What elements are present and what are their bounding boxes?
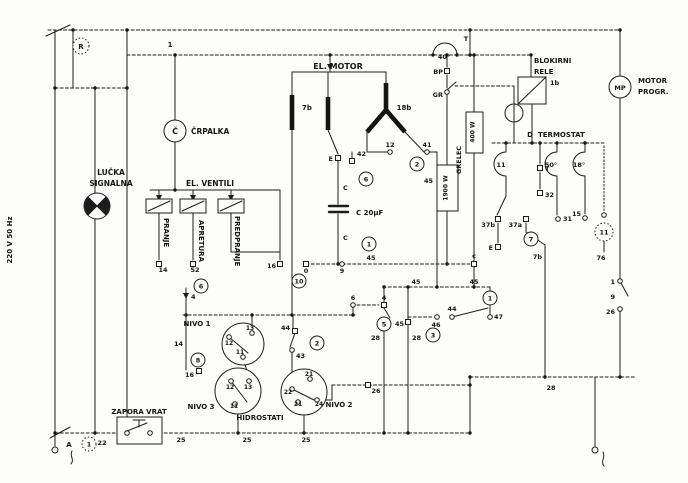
terminal-16-b: 16 (185, 371, 195, 379)
relay-label-2: RELE (534, 68, 554, 76)
program-motor-label-1: MOTOR (638, 77, 668, 85)
step-6-valves: 6 (199, 283, 204, 291)
nivo2-label: NIVO 2 (325, 401, 352, 409)
pump-label: ČRPALKA (191, 127, 229, 136)
door-lock-label: ZAPORA VRAT (111, 408, 167, 416)
thermostat-arc-left-label: 11 (496, 161, 506, 169)
terminal-25-c: 25 (242, 436, 252, 444)
terminal-15: 15 (572, 210, 582, 218)
terminal-4-valve: 4 (191, 293, 196, 301)
terminal-25-a: 25 (301, 436, 311, 444)
step-5: 5 (382, 321, 387, 329)
selector-switch-label: R (78, 43, 84, 51)
terminal-45-c: 45 (395, 320, 405, 328)
terminal-GR: GR (433, 91, 443, 99)
terminal-45-b: 45 (424, 177, 434, 185)
heater-1900w-label: 1900 W (443, 175, 450, 201)
hydrostats-label: HIDROSTATI (236, 414, 283, 422)
terminal-mp-1: 1 (610, 278, 615, 286)
valve-apretura-icon (180, 199, 206, 213)
motor-label: EL. MOTOR (313, 62, 363, 71)
terminal-14-b: 14 (174, 340, 184, 348)
step-2-motor: 2 (415, 161, 420, 169)
wiring-layer (46, 25, 636, 466)
terminal-25-b: 25 (176, 436, 186, 444)
terminal-14-valve: 14 (158, 266, 168, 274)
terminal-c: c (472, 252, 476, 260)
terminal-41-motor: 41 (422, 141, 432, 149)
step-1-right: 1 (488, 295, 493, 303)
nivo1-terminal-13: 13 (246, 325, 254, 332)
step-3: 3 (431, 332, 436, 340)
nivo3-terminal-12: 12 (226, 384, 234, 391)
pump-symbol-letter: Č (172, 125, 178, 136)
relay-label-1: BLOKIRNI (534, 57, 571, 65)
line-1-label: 1 (168, 41, 173, 49)
terminal-A: A (66, 441, 72, 449)
nivo3-terminal-11: 11 (230, 403, 238, 410)
arrow-level-feed (183, 293, 189, 299)
terminal-22: 22 (97, 439, 106, 447)
terminal-28-b: 28 (371, 334, 381, 342)
valve-pranje-icon (146, 199, 172, 213)
supply-note: 220 V 50 Hz (6, 216, 14, 263)
terminal-T-top: T (464, 35, 469, 43)
terminal-28-a: 28 (546, 384, 556, 392)
terminal-9: 9 (340, 267, 345, 275)
terminal-52-valve: 52 (190, 266, 199, 274)
terminal-E-thermo: E (489, 244, 493, 252)
terminal-47: 47 (494, 313, 503, 321)
nivo2-terminal-21-top: 21 (305, 371, 313, 378)
nivo1-label: NIVO 1 (183, 320, 210, 328)
capacitor-label: C 20µF (356, 209, 383, 217)
terminal-6-b: 6 (351, 294, 356, 302)
valve-apretura-label: APRETURA (197, 220, 205, 263)
component-layer (50, 28, 631, 453)
terminal-45-a: 45 (366, 254, 376, 262)
program-motor-label-2: PROGR. (638, 88, 668, 96)
thermostat-section-label: TERMOSTAT (538, 131, 585, 139)
nivo1-terminal-12: 12 (225, 340, 233, 347)
winding-18b-label: 18b (397, 104, 412, 112)
nivo3-label: NIVO 3 (187, 403, 214, 411)
terminal-37a: 37a (509, 221, 522, 229)
terminal-44-a: 44 (281, 324, 291, 332)
valve-predpranje-label: PREDPRANJE (233, 216, 241, 267)
terminal-mp-26: 26 (606, 308, 616, 316)
step-7: 7 (529, 236, 534, 244)
thermostat-40-label: 40° (438, 53, 450, 61)
valves-section-label: EL. VENTILI (186, 179, 234, 188)
signal-lamp-icon (84, 193, 110, 219)
terminal-4-b: 4 (382, 294, 387, 302)
terminal-12-motor: 12 (385, 141, 394, 149)
schematic-canvas: 220 V 50 Hz R 1 Č ČRPALKA LUČKA SIGNALNA… (0, 0, 688, 483)
terminal-7b: 7b (533, 253, 543, 261)
nivo2-terminal-24: 24 (315, 401, 323, 408)
schematic-page: 220 V 50 Hz R 1 Č ČRPALKA LUČKA SIGNALNA… (0, 0, 688, 483)
terminal-46: 46 (431, 321, 441, 329)
lamp-label-2: SIGNALNA (89, 179, 132, 188)
terminal-E-motor: E (329, 155, 333, 163)
terminal-32: 32 (545, 191, 554, 199)
relay-code-label: 1b (550, 79, 560, 87)
supply-terminal-right (592, 447, 598, 453)
mp-contact-26 (618, 307, 623, 312)
heater-400w-label: 400 W (470, 121, 477, 143)
terminal-42: 42 (357, 150, 366, 158)
terminal-45-d: 45 (411, 278, 421, 286)
terminal-28-c: 28 (412, 334, 422, 342)
heater-label: GRELEC (455, 146, 463, 174)
relay-lamp-icon (505, 104, 523, 122)
lamp-label-1: LUČKA (97, 168, 125, 177)
step-10: 10 (294, 278, 304, 286)
step-8: 8 (196, 357, 201, 365)
terminal-mp-9: 9 (610, 293, 615, 301)
nivo2-terminal-22: 22 (284, 389, 292, 396)
nivo2-terminal-21-bot: 21 (294, 401, 302, 408)
thermostat-18-label: 18° (573, 161, 585, 169)
nivo1-terminal-11: 11 (236, 349, 244, 356)
winding-7b-label: 7b (302, 104, 312, 112)
terminal-45-e: 45 (469, 278, 479, 286)
terminal-37b: 37b (481, 221, 495, 229)
terminal-BP: BP (433, 68, 443, 76)
terminal-76: 76 (596, 254, 606, 262)
program-motor-symbol: MP (614, 84, 625, 92)
step-1-cap: 1 (367, 241, 372, 249)
step-1-door: 1 (87, 441, 92, 449)
valve-predpranje-icon (218, 199, 244, 213)
terminal-16-valve: 16 (267, 262, 277, 270)
step-6-motor: 6 (364, 176, 369, 184)
terminal-T-thermo: T (545, 165, 550, 173)
step-2-level: 2 (315, 340, 320, 348)
cap-wire-c-top: C (343, 184, 348, 192)
terminal-26-b: 26 (371, 387, 381, 395)
nivo3-terminal-13: 13 (244, 384, 252, 391)
valve-pranje-label: PRANJE (162, 218, 170, 247)
mp-contact-1 (618, 279, 623, 284)
thermostat-prefix: D (527, 131, 533, 139)
terminal-44-b: 44 (447, 305, 457, 313)
terminal-43: 43 (296, 352, 305, 360)
step-11: 11 (599, 229, 609, 237)
cap-wire-c-bottom: C (343, 234, 348, 242)
blocking-relay-icon (518, 77, 546, 104)
door-lock-icon (117, 417, 162, 444)
label-layer: 220 V 50 Hz R 1 Č ČRPALKA LUČKA SIGNALNA… (6, 35, 668, 449)
terminal-0: 0 (304, 267, 309, 275)
supply-terminal-left (52, 447, 58, 453)
